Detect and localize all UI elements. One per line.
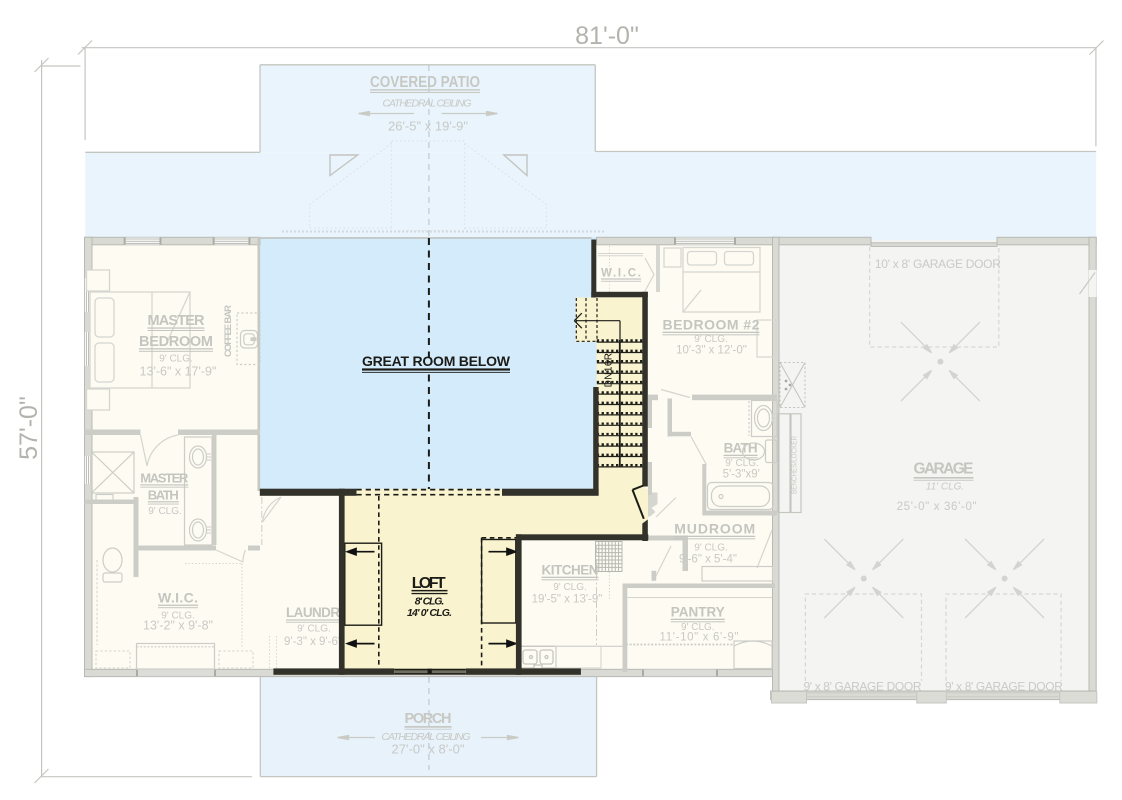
svg-text:GREAT ROOM BELOW: GREAT ROOM BELOW [362, 353, 511, 369]
svg-text:9'-3" x 9'-6": 9'-3" x 9'-6" [284, 636, 342, 648]
svg-text:13'-2" x 9'-8": 13'-2" x 9'-8" [143, 619, 213, 633]
svg-text:MASTER: MASTER [140, 471, 189, 486]
svg-text:5'-3"x9': 5'-3"x9' [723, 469, 760, 481]
svg-text:DN16R: DN16R [604, 353, 615, 388]
svg-text:8' CLG.: 8' CLG. [415, 596, 445, 608]
svg-text:81'-0": 81'-0" [575, 22, 639, 50]
svg-text:CATHEDRAL CEILING: CATHEDRAL CEILING [383, 98, 472, 110]
svg-text:27'-0" x 8'-0": 27'-0" x 8'-0" [392, 742, 465, 757]
svg-text:9' CLG.: 9' CLG. [297, 624, 331, 635]
svg-text:BEDROOM #2: BEDROOM #2 [663, 317, 760, 333]
svg-text:10' x 8' GARAGE DOOR: 10' x 8' GARAGE DOOR [875, 257, 1001, 271]
svg-text:9' CLG.: 9' CLG. [553, 582, 587, 593]
svg-text:9' x 8' GARAGE DOOR: 9' x 8' GARAGE DOOR [804, 680, 922, 694]
svg-text:9' CLG.: 9' CLG. [148, 506, 182, 517]
svg-text:MUDROOM: MUDROOM [674, 521, 755, 537]
svg-text:COFFEE BAR: COFFEE BAR [223, 305, 234, 357]
svg-text:9' CLG.: 9' CLG. [159, 353, 193, 364]
svg-text:10'-3" x 12'-0": 10'-3" x 12'-0" [676, 345, 747, 357]
svg-text:57'-0": 57'-0" [15, 396, 43, 460]
svg-text:BENCHES/LOCKER: BENCHES/LOCKER [790, 436, 799, 494]
svg-text:W.I.C.: W.I.C. [601, 268, 641, 280]
svg-text:COVERED PATIO: COVERED PATIO [370, 74, 480, 91]
svg-text:19'-5" x 13'-9": 19'-5" x 13'-9" [532, 594, 603, 606]
svg-text:14' 0' CLG.: 14' 0' CLG. [407, 607, 452, 619]
svg-text:PORCH: PORCH [405, 711, 452, 727]
svg-text:GARAGE: GARAGE [914, 461, 974, 478]
svg-text:25'-0" x 36'-0": 25'-0" x 36'-0" [897, 501, 977, 513]
svg-text:26'-5" x 19'-9": 26'-5" x 19'-9" [388, 118, 468, 133]
svg-text:9' x 8' GARAGE DOOR: 9' x 8' GARAGE DOOR [945, 680, 1063, 694]
svg-text:PANTRY: PANTRY [671, 605, 725, 620]
svg-text:MASTER: MASTER [148, 313, 206, 329]
svg-text:9' CLG.: 9' CLG. [694, 543, 728, 554]
svg-text:LOFT: LOFT [412, 575, 446, 592]
svg-text:13'-6" x 17'-9": 13'-6" x 17'-9" [140, 364, 217, 378]
svg-text:9'-6" x 5'-4": 9'-6" x 5'-4" [679, 554, 737, 566]
svg-text:9' CLG.: 9' CLG. [694, 334, 728, 345]
svg-text:BATH: BATH [148, 487, 179, 502]
svg-text:11' CLG.: 11' CLG. [926, 482, 964, 493]
svg-text:KITCHEN: KITCHEN [542, 563, 599, 578]
svg-text:LAUNDRY: LAUNDRY [286, 605, 348, 620]
svg-text:BEDROOM: BEDROOM [139, 334, 213, 350]
svg-text:W.I.C.: W.I.C. [158, 590, 198, 606]
svg-text:11'-10" x 6'-9": 11'-10" x 6'-9" [660, 632, 739, 644]
